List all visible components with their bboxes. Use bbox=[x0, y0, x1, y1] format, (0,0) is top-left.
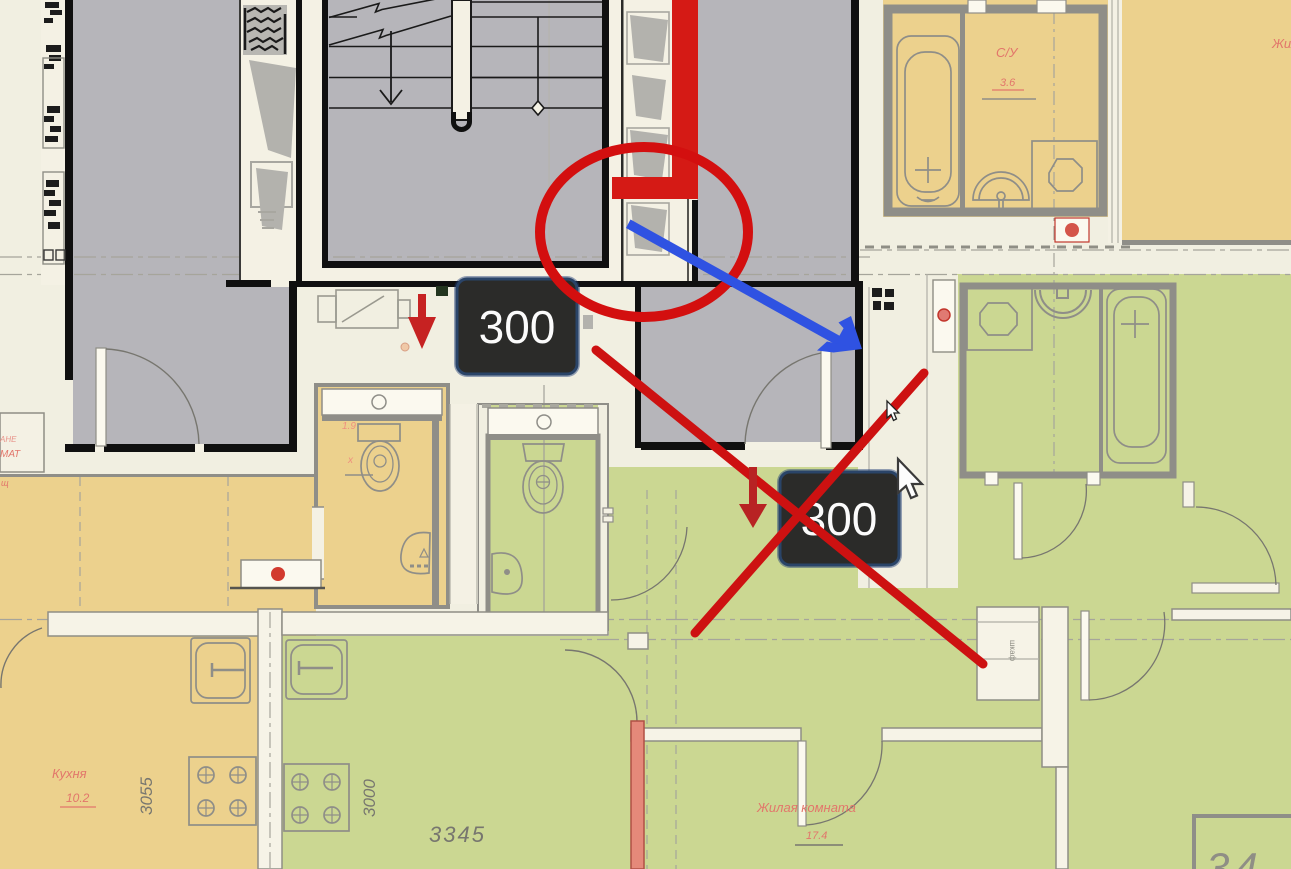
svg-text:щ: щ bbox=[1, 478, 9, 488]
svg-text:3000: 3000 bbox=[360, 779, 379, 817]
svg-text:шкаф: шкаф bbox=[1008, 640, 1017, 662]
svg-text:3055: 3055 bbox=[137, 777, 156, 815]
svg-text:Кухня: Кухня bbox=[52, 766, 87, 781]
svg-text:Жилая комната: Жилая комната bbox=[756, 800, 856, 815]
svg-text:10.2: 10.2 bbox=[66, 791, 90, 805]
svg-text:х: х bbox=[347, 455, 354, 466]
svg-text:АНЕ: АНЕ bbox=[0, 435, 17, 444]
svg-text:3.6: 3.6 bbox=[1000, 77, 1016, 89]
svg-text:3345: 3345 bbox=[429, 822, 486, 847]
svg-text:34: 34 bbox=[1206, 844, 1263, 869]
svg-text:МАТ: МАТ bbox=[0, 449, 21, 460]
svg-text:Жил: Жил bbox=[1271, 36, 1291, 51]
svg-text:1.9: 1.9 bbox=[342, 421, 356, 432]
svg-text:С/У: С/У bbox=[996, 45, 1019, 60]
svg-text:300: 300 bbox=[479, 301, 556, 353]
svg-text:17.4: 17.4 bbox=[806, 830, 827, 842]
